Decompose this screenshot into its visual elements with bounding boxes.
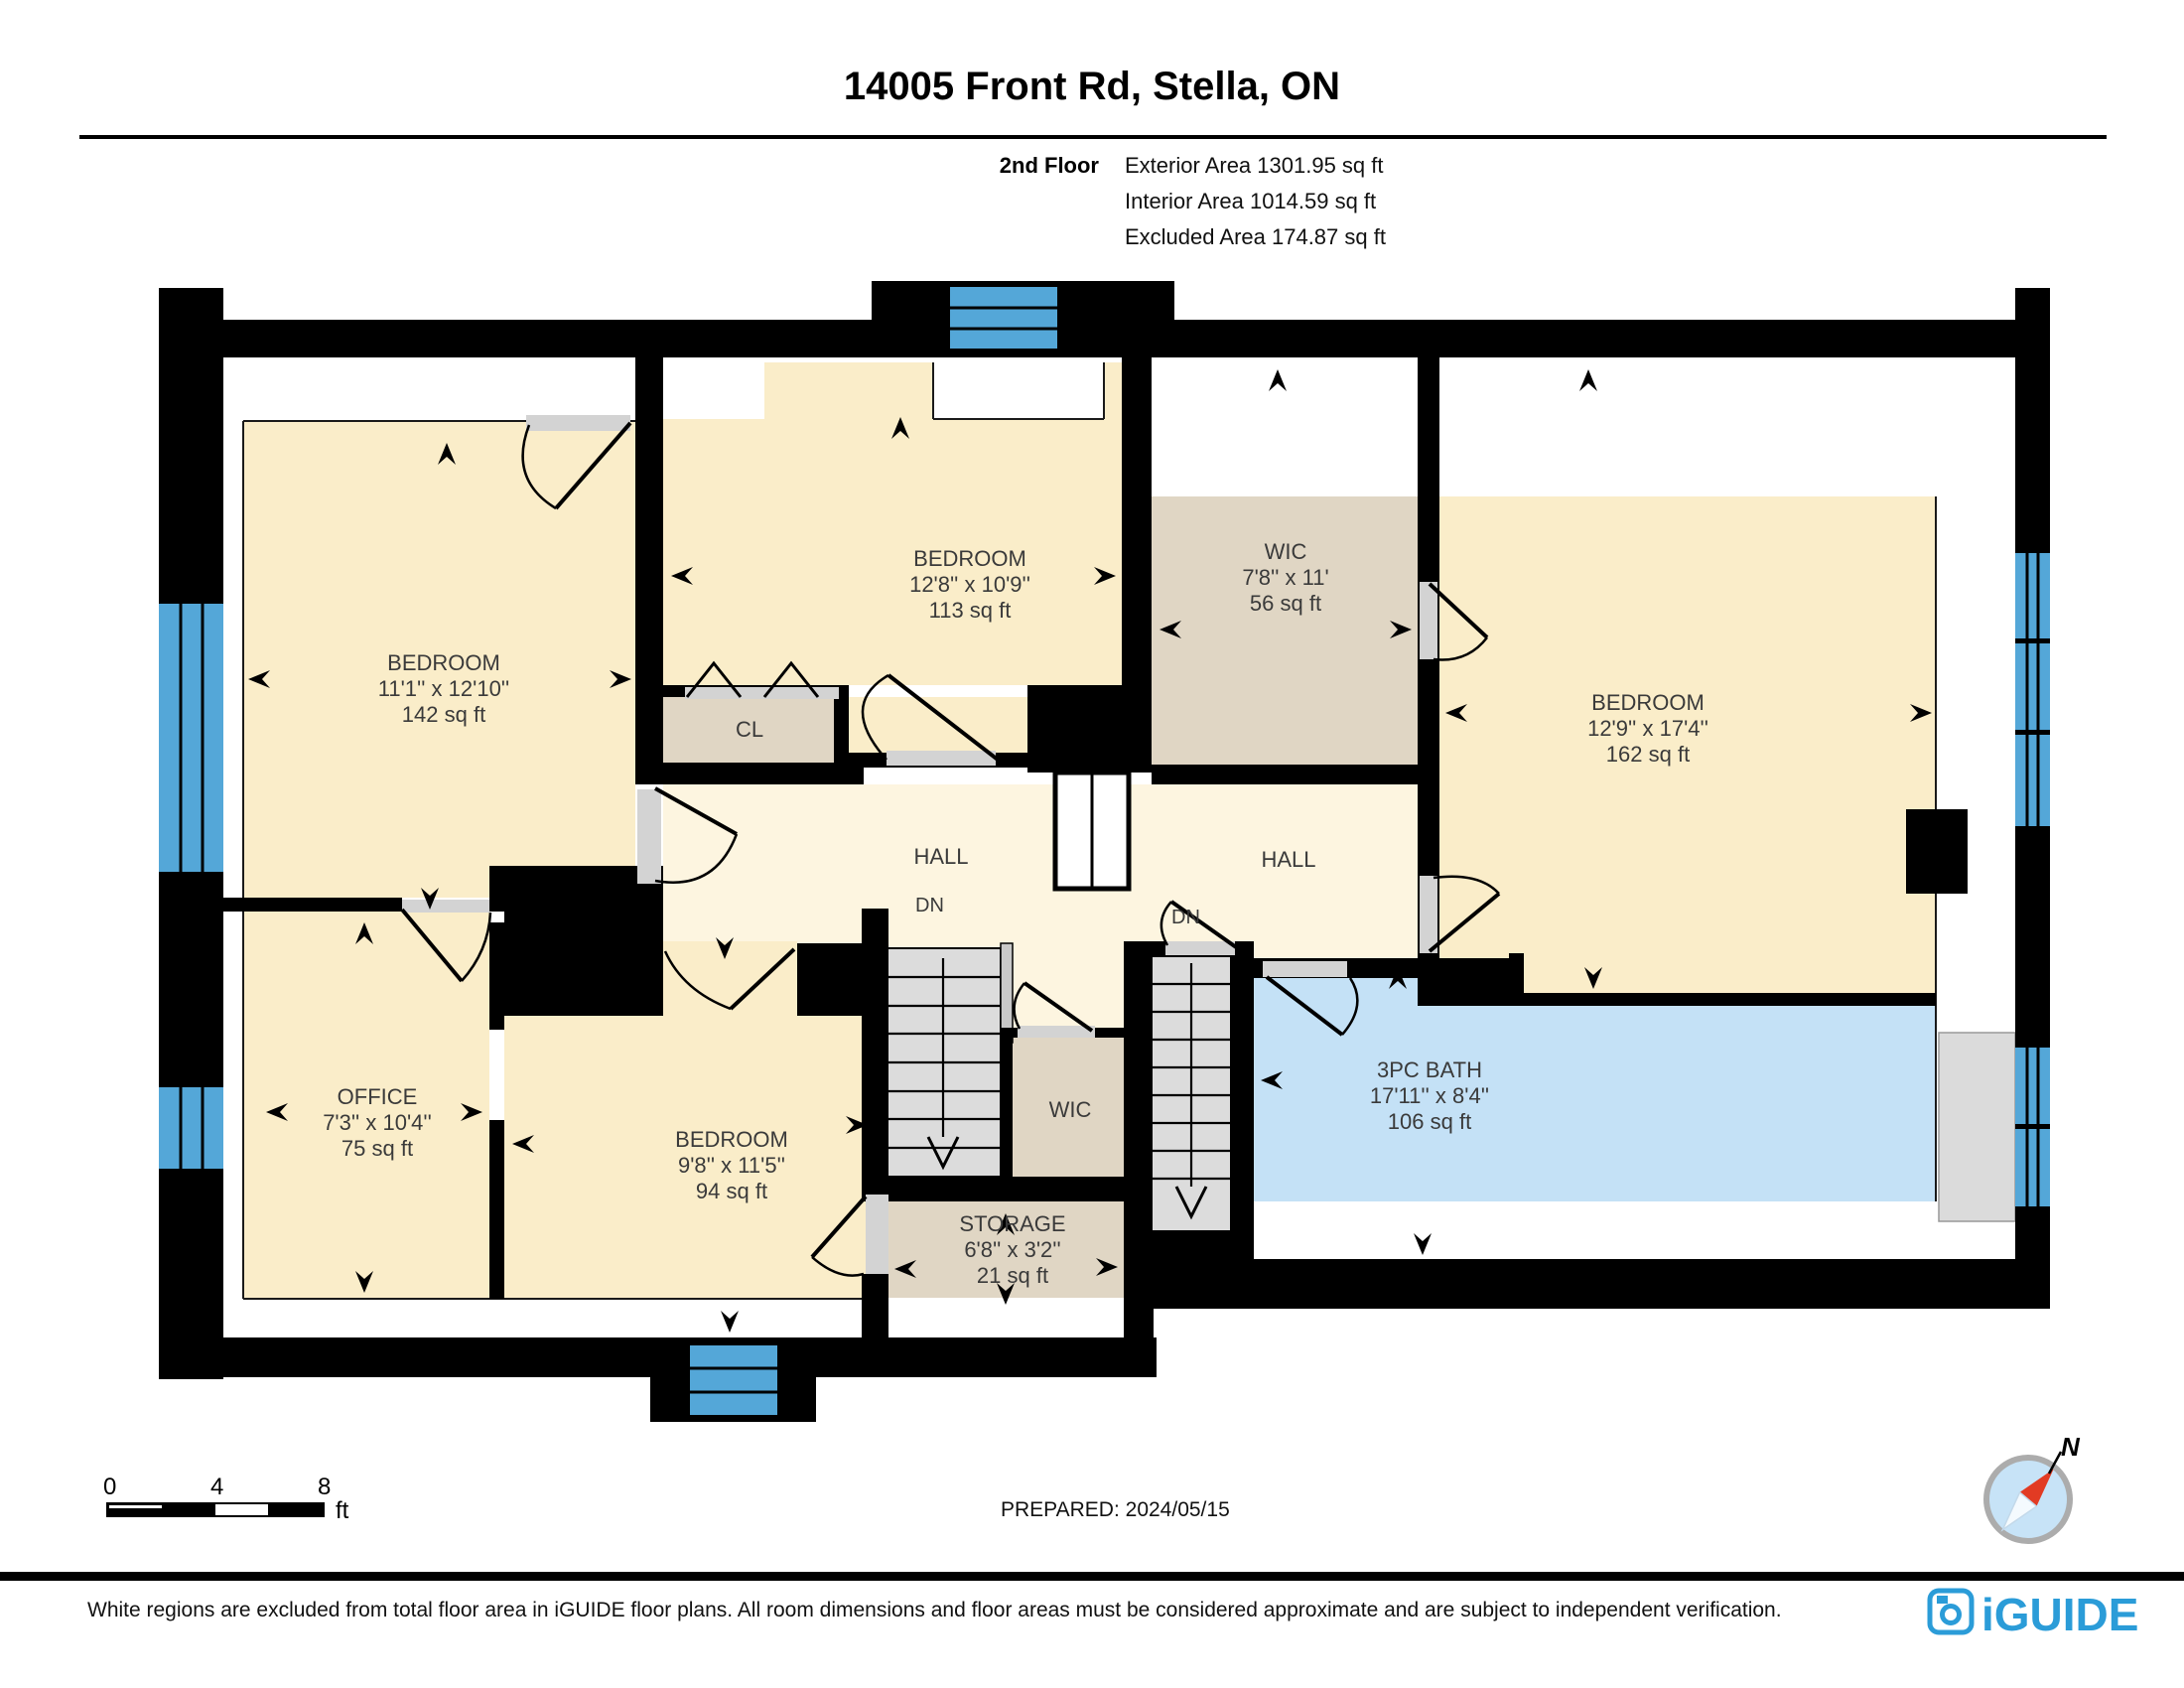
scale-tick-0: 0	[103, 1474, 116, 1500]
floor-plan-page: 14005 Front Rd, Stella, ON 2nd Floor Ext…	[0, 0, 2184, 1688]
scale-tick-8: 8	[318, 1474, 331, 1500]
excluded-area: Excluded Area 174.87 sq ft	[1125, 224, 1386, 249]
footer: White regions are excluded from total fl…	[0, 1572, 2184, 1640]
staircase-left	[887, 943, 1013, 1177]
floor-plan-canvas: 14005 Front Rd, Stella, ON 2nd Floor Ext…	[0, 0, 2184, 1688]
attic-access-area	[1939, 1033, 2015, 1221]
staircase-right	[1152, 956, 1231, 1231]
stairs-dn-label: DN	[1171, 907, 1200, 928]
compass-icon: N	[1986, 1432, 2081, 1541]
scale-bar: 0 4 8 ft	[103, 1474, 349, 1524]
room-label: CL	[736, 717, 763, 742]
room-label: 3PC BATH17'11'' x 8'4''106 sq ft	[1370, 1057, 1489, 1134]
stairs-dn-label: DN	[915, 895, 944, 916]
scale-unit: ft	[336, 1497, 349, 1524]
header-divider	[79, 135, 2107, 139]
exterior-area: Exterior Area 1301.95 sq ft	[1125, 153, 1384, 178]
iguide-logo-icon	[1930, 1591, 1972, 1632]
iguide-logo-text: iGUIDE	[1981, 1589, 2138, 1640]
footer-disclaimer: White regions are excluded from total fl…	[87, 1599, 1782, 1621]
header: 14005 Front Rd, Stella, ON 2nd Floor Ext…	[79, 65, 2107, 249]
compass-north-label: N	[2061, 1432, 2081, 1462]
room-label: HALL	[913, 844, 968, 869]
footer-divider	[0, 1572, 2184, 1581]
chimney-block	[1906, 809, 1968, 894]
room-label: WIC	[1049, 1097, 1092, 1122]
chimney	[1055, 773, 1129, 889]
floor-label: 2nd Floor	[1000, 153, 1100, 178]
interior-area: Interior Area 1014.59 sq ft	[1125, 189, 1376, 213]
page-title: 14005 Front Rd, Stella, ON	[844, 65, 1340, 108]
iguide-logo: iGUIDE	[1930, 1589, 2138, 1640]
scale-tick-4: 4	[210, 1474, 223, 1500]
room-label: HALL	[1261, 847, 1315, 872]
prepared-date: PREPARED: 2024/05/15	[1001, 1498, 1230, 1521]
